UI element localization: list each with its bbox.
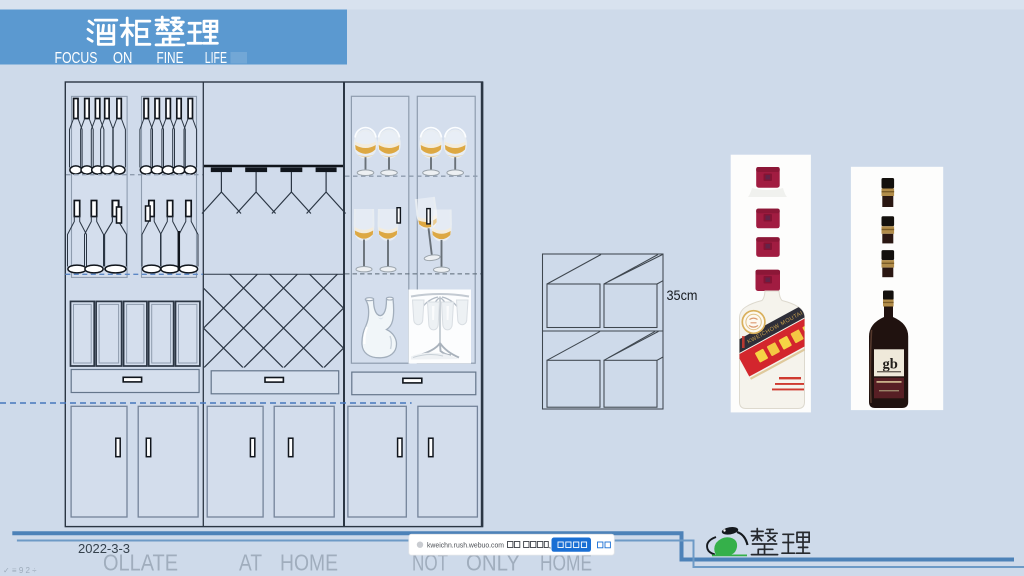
svg-text:35cm: 35cm <box>667 288 698 303</box>
svg-text:✓ ≡ 9 2 ÷: ✓ ≡ 9 2 ÷ <box>3 566 37 575</box>
svg-text:HOME: HOME <box>280 550 338 576</box>
svg-text:FOCUS: FOCUS <box>55 50 98 67</box>
svg-text:ON: ON <box>113 50 132 67</box>
svg-text:kweichn.rush.webuo.com: kweichn.rush.webuo.com <box>427 542 504 549</box>
svg-text:OLLATE: OLLATE <box>103 550 178 576</box>
svg-text:LIFE: LIFE <box>205 50 227 67</box>
svg-text:FINE: FINE <box>157 50 184 67</box>
svg-text:gb: gb <box>883 357 898 373</box>
svg-text:AT: AT <box>239 550 262 576</box>
